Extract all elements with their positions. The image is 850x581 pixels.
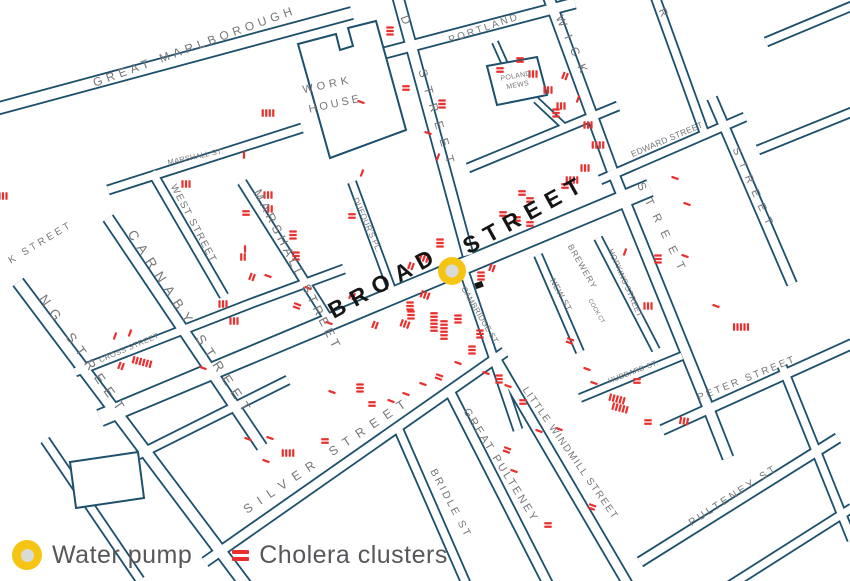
cholera-tick [436,238,444,240]
cholera-cluster [240,253,246,261]
cholera-tick [543,86,545,94]
cholera-tick [644,423,652,425]
cholera-tick [671,176,679,181]
cholera-tick [584,164,586,172]
cholera-cluster [436,238,444,247]
cholera-cluster [476,329,484,338]
cholera-tick [454,314,462,316]
cholera-tick [618,396,622,404]
cholera-tick [440,327,448,329]
cholera-cluster [454,361,462,366]
cholera-cluster [518,190,526,196]
cholera-tick [436,242,444,244]
cholera-tick [587,164,589,172]
cholera-tick [476,336,484,338]
street [538,255,580,352]
cholera-tick [368,401,376,403]
cholera-tick [360,169,365,177]
cholera-cluster [113,332,118,340]
cholera-tick [608,393,612,401]
cholera-tick [583,121,585,129]
cholera-tick [292,449,294,457]
cholera-tick [386,33,394,35]
cholera-tick [454,318,462,320]
cholera-clusters-label: Cholera clusters [259,541,448,570]
cholera-tick [440,338,448,340]
cholera-tick [285,449,287,457]
cholera-cluster [282,449,295,457]
cholera-tick [188,180,190,188]
cholera-tick [440,324,448,326]
cholera-cluster [0,192,8,200]
cholera-tick [262,459,270,464]
cholera-tick [583,367,591,372]
cholera-tick [552,112,560,114]
cholera-cluster [477,271,485,280]
cholera-cluster [608,393,626,404]
legend: Water pump Cholera clusters [12,540,448,570]
street-label-great-marlborough: GREAT MARLBOROUGH [91,3,298,90]
cholera-cluster [248,273,256,282]
cholera-tick [113,332,118,340]
cholera-tick [623,248,628,256]
cholera-tick [356,387,364,389]
cholera-tick [654,261,662,263]
cholera-cluster [419,382,427,387]
cholera-tick [242,210,250,212]
cholera-tick [740,323,742,331]
cholera-tick [269,109,271,117]
cholera-cluster [590,381,598,386]
cholera-tick [644,419,652,421]
cholera-tick [135,357,139,365]
cholera-tick [430,312,438,314]
cholera-tick [518,194,526,196]
building-marker [474,281,484,289]
cholera-tick [602,141,604,149]
cholera-tick [625,406,629,414]
cholera-tick [621,405,625,413]
cholera-tick [552,108,560,110]
cholera-tick [590,381,598,386]
legend-water-pump: Water pump [12,540,192,570]
cholera-cluster [623,248,628,256]
water-pump-label: Water pump [52,541,192,570]
cholera-cluster [583,121,592,129]
cholera-tick [406,308,414,310]
cholera-tick [592,141,594,149]
street [766,6,850,42]
cholera-tick [407,310,415,312]
cholera-tick [430,323,438,325]
street-label-dufour-s-pl-: DUFOUR'S PL. [351,196,383,253]
cholera-cluster [671,176,679,181]
cholera-tick [430,319,438,321]
cholera-tick [233,317,235,325]
cholera-tick [468,345,476,347]
cholera-cluster [430,312,438,332]
snow-cholera-map: GREAT MARLBOROUGHPORTLANDDSTREETPOLANDME… [0,0,850,581]
cholera-tick [547,86,549,94]
cholera-tick [563,102,565,110]
cholera-tick [552,115,560,117]
cholera-cluster [644,419,652,425]
cholera-cluster [406,301,414,310]
cholera-tick [633,382,641,384]
cholera-tick [611,402,615,410]
cholera-cluster [360,169,365,177]
cholera-tick [240,253,242,261]
yard-block [70,452,144,508]
cholera-tick [454,321,462,323]
cholera-tick [402,89,410,91]
cholera-tick [270,191,272,199]
cholera-cluster [293,302,302,310]
cholera-tick [266,436,274,441]
cholera-tick [683,202,691,207]
street-label-little-windmill-street: LITTLE WINDMILL STREET [520,385,620,522]
cholera-tick [643,302,645,310]
cholera-cluster [495,374,503,383]
street [536,100,568,130]
cholera-tick [654,254,662,256]
cholera-cluster [733,323,749,331]
street [18,282,248,581]
cholera-cluster [643,302,652,310]
cholera-tick [132,356,136,364]
cholera-tick [145,359,149,367]
cholera-cluster [580,164,589,172]
cholera-tick [495,381,503,383]
cholera-tick [519,403,527,405]
cholera-tick [265,109,267,117]
cholera-tick [477,278,485,280]
cholera-cluster [244,245,246,253]
cholera-cluster [503,446,512,454]
cholera-cluster [266,436,274,441]
cholera-tick [148,360,152,368]
cholera-cluster [544,522,552,528]
cholera-cluster [611,402,629,413]
cholera-tick [518,190,526,192]
cholera-tick [495,378,503,380]
street [758,112,850,150]
cholera-tick [218,300,220,308]
cholera-tick [590,121,592,129]
cholera-tick [289,230,297,232]
cholera-tick [368,405,376,407]
cholera-tick [386,26,394,28]
cholera-cluster [229,317,238,325]
cholera-tick [544,526,552,528]
cholera-cluster [712,304,720,309]
cholera-tick [282,449,284,457]
cholera-tick [244,245,246,253]
cholera-cluster [262,459,270,464]
cholera-tick [262,109,264,117]
cholera-tick [733,323,735,331]
cholera-tick [468,349,476,351]
cholera-tick [406,305,414,307]
cholera-tick [618,404,622,412]
cholera-tick [535,70,537,78]
cholera-cluster [407,310,415,319]
cholera-tick [430,326,438,328]
cholera-tick [532,70,534,78]
cholera-tick [550,86,552,94]
cholera-tick [477,271,485,273]
street [652,0,704,132]
cholera-tick [712,304,720,309]
cholera-tick [181,180,183,188]
cholera-tick [436,245,444,247]
cholera-bar [232,550,249,554]
cholera-tick [2,192,4,200]
cholera-tick [244,253,246,261]
street-label-pulteney-st: PULTENEY ST [687,462,781,529]
cholera-cluster [440,320,448,340]
cholera-tick [633,378,641,380]
cholera-tick [650,302,652,310]
cholera-tick [0,192,1,200]
cholera-tick [222,300,224,308]
cholera-tick [407,317,415,319]
cholera-tick [289,234,297,236]
cholera-tick [599,141,601,149]
cholera-tick [430,330,438,332]
cholera-bar [232,557,249,561]
cholera-cluster [218,300,227,308]
cholera-tick [612,394,616,402]
cholera-cluster [242,210,250,216]
cholera-tick [142,359,146,367]
cholera-cluster [552,108,560,117]
street-label-hopkins-street: HOPKINS STREET [606,247,644,318]
cholera-cluster [348,213,356,219]
cholera-tick [225,300,227,308]
street-label-cock-ct: COCK CT [587,298,606,325]
cholera-tick [747,323,749,331]
cholera-tick [321,438,329,440]
poland-mews-block [487,57,547,105]
cholera-tick [736,323,738,331]
cholera-tick [440,331,448,333]
cholera-cluster [356,383,364,392]
cholera-tick [654,258,662,260]
cholera-tick [185,180,187,188]
cholera-tick [495,374,503,376]
cholera-cluster [132,356,153,368]
cholera-cluster [371,321,379,330]
cholera-tick [476,333,484,335]
cholera-tick [402,85,410,87]
cholera-cluster [128,329,133,337]
cholera-tick [321,442,329,444]
cholera-clusters-icon [232,550,249,561]
street-label-street: STREET [730,146,778,234]
cholera-tick [615,403,619,411]
cholera-tick [128,329,133,337]
cholera-cluster [328,390,336,395]
cholera-tick [440,334,448,336]
street-label-k-street: K STREET [7,219,75,266]
cholera-cluster [181,180,190,188]
cholera-cluster [683,202,691,207]
cholera-cluster [399,319,410,329]
street [0,13,352,110]
cholera-tick [5,192,7,200]
cholera-tick [430,316,438,318]
cholera-cluster [386,26,394,35]
map-canvas: GREAT MARLBOROUGHPORTLANDDSTREETPOLANDME… [0,0,850,581]
water-pump-icon [12,540,42,570]
street [782,366,850,540]
cholera-tick [348,213,356,215]
cholera-cluster [454,314,462,323]
water-pump-icon-inner [21,549,34,562]
cholera-tick [348,217,356,219]
cholera-tick [477,275,485,277]
street-label-brewery: BREWERY [566,242,600,290]
cholera-tick [229,317,231,325]
cholera-tick [407,314,415,316]
cholera-tick [496,67,504,69]
cholera-tick [138,358,142,366]
cholera-tick [406,301,414,303]
cholera-cluster [321,438,329,444]
cholera-tick [454,361,462,366]
cholera-tick [647,302,649,310]
cholera-tick [595,141,597,149]
legend-cholera-clusters: Cholera clusters [204,541,448,570]
cholera-cluster [368,401,376,407]
cholera-tick [264,274,272,279]
cholera-tick [440,320,448,322]
cholera-tick [615,395,619,403]
cholera-tick [622,397,626,405]
cholera-tick [580,164,582,172]
cholera-tick [236,317,238,325]
cholera-cluster [654,254,662,263]
cholera-tick [272,109,274,117]
street-label-silver-street: SILVER STREET [241,393,415,517]
cholera-cluster [264,274,272,279]
cholera-cluster [468,345,476,354]
cholera-cluster [402,85,410,91]
cholera-tick [560,102,562,110]
cholera-cluster [289,230,297,239]
street [640,438,838,562]
cholera-tick [356,390,364,392]
cholera-cluster [583,367,591,372]
cholera-cluster [117,362,125,371]
cholera-tick [419,382,427,387]
cholera-cluster [543,86,552,94]
cholera-tick [328,390,336,395]
cholera-tick [468,352,476,354]
cholera-cluster [435,373,444,381]
cholera-tick [386,30,394,32]
cholera-cluster [679,417,689,426]
cholera-tick [243,151,245,159]
cholera-cluster [262,109,275,117]
street [612,170,728,458]
cholera-cluster [561,72,569,81]
cholera-tick [242,214,250,216]
cholera-tick [356,383,364,385]
cholera-tick [587,121,589,129]
cholera-tick [544,522,552,524]
cholera-cluster [243,151,245,159]
cholera-tick [476,329,484,331]
water-pump-marker-inner [446,265,459,278]
cholera-tick [516,57,524,59]
cholera-tick [496,71,504,73]
cholera-tick [516,61,524,63]
cholera-tick [743,323,745,331]
cholera-tick [289,449,291,457]
